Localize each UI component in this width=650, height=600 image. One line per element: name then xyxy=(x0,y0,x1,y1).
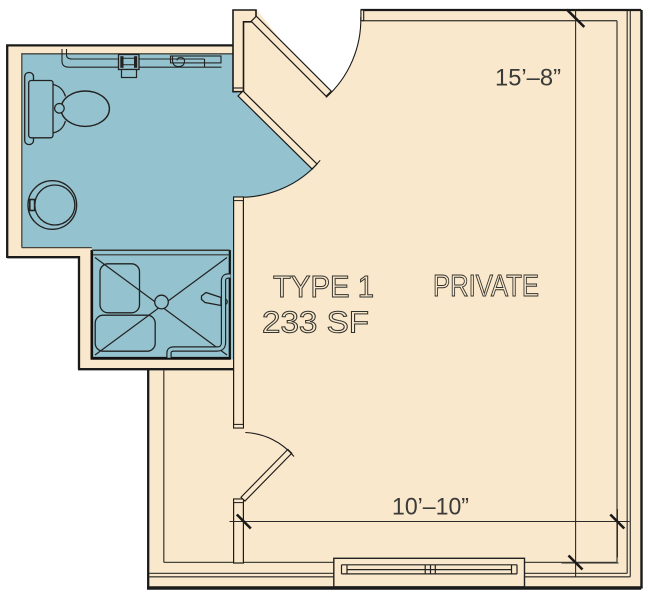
svg-text:PRIVATE: PRIVATE xyxy=(433,269,539,303)
svg-text:15’–8”: 15’–8” xyxy=(495,65,561,92)
svg-text:233 SF: 233 SF xyxy=(262,306,369,340)
svg-text:TYPE 1: TYPE 1 xyxy=(273,270,374,304)
svg-text:10’–10”: 10’–10” xyxy=(392,494,469,521)
